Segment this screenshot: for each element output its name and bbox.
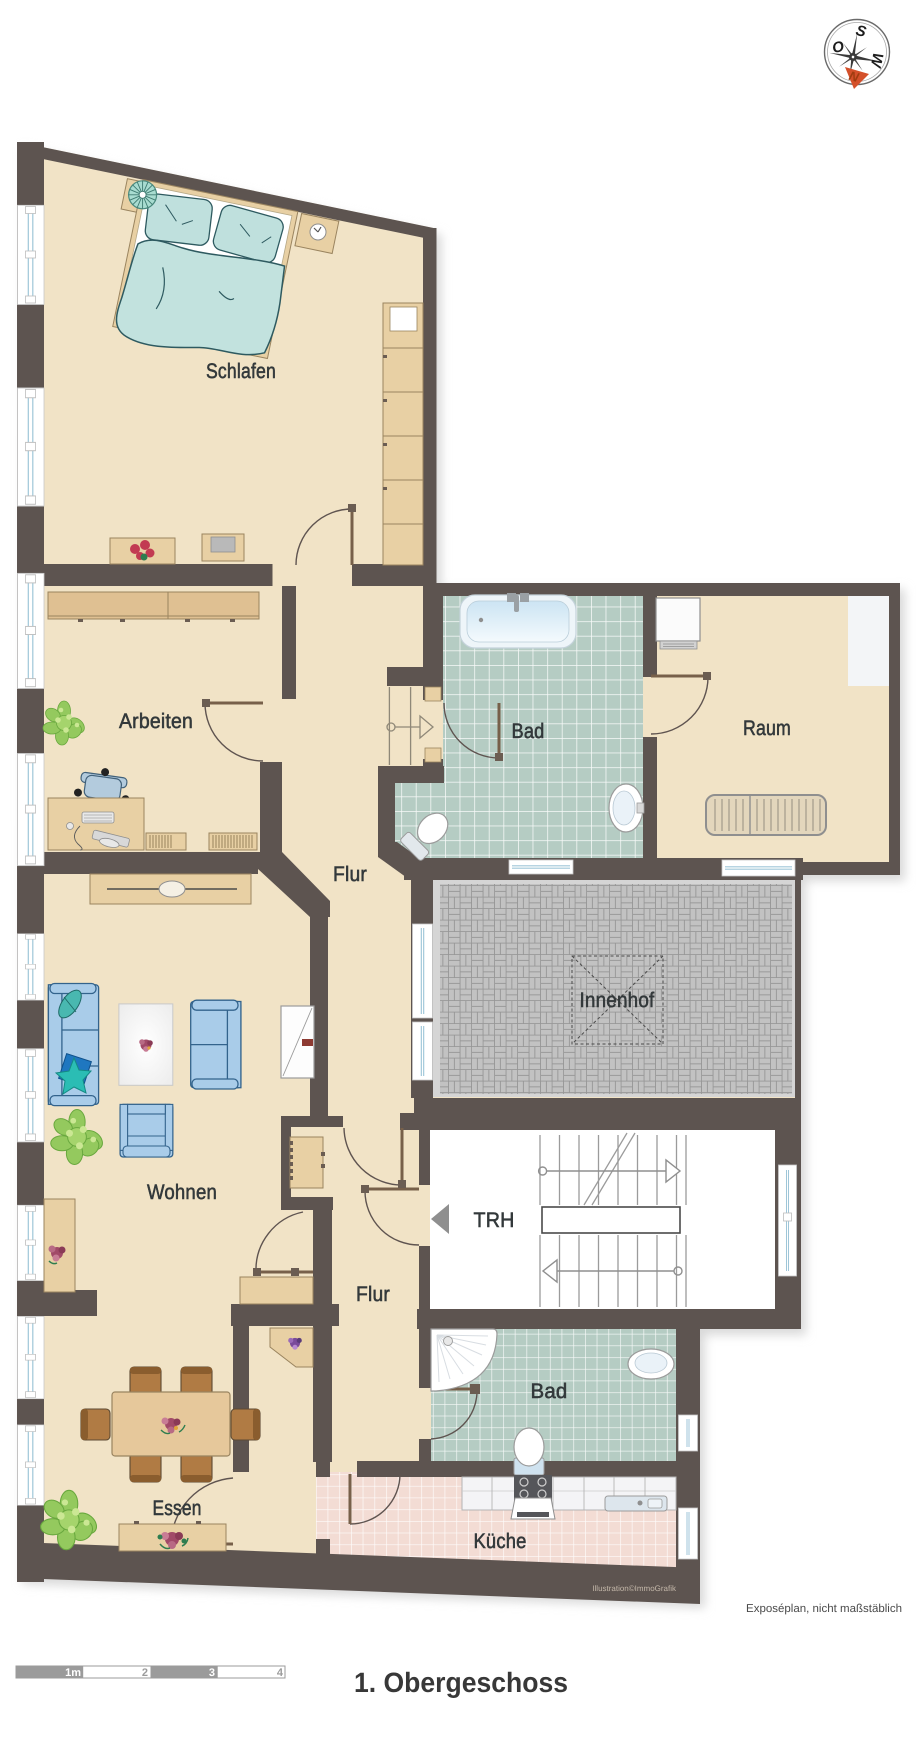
svg-text:2: 2 (142, 1667, 148, 1679)
svg-text:Schlafen: Schlafen (206, 360, 276, 383)
svg-text:Innenhof: Innenhof (580, 989, 655, 1012)
svg-text:1. Obergeschoss: 1. Obergeschoss (354, 1667, 568, 1698)
svg-text:TRH: TRH (474, 1209, 515, 1232)
svg-text:Wohnen: Wohnen (147, 1181, 217, 1204)
svg-text:Küche: Küche (474, 1530, 527, 1553)
svg-text:Flur: Flur (356, 1283, 390, 1306)
svg-text:Flur: Flur (333, 863, 367, 886)
svg-text:1m: 1m (65, 1667, 81, 1679)
svg-text:Raum: Raum (743, 717, 791, 740)
svg-text:3: 3 (209, 1667, 215, 1679)
svg-text:Arbeiten: Arbeiten (119, 710, 193, 733)
svg-text:Illustration©ImmoGrafik: Illustration©ImmoGrafik (592, 1584, 677, 1593)
svg-text:4: 4 (277, 1667, 284, 1679)
svg-text:Bad: Bad (512, 720, 545, 743)
svg-text:Bad: Bad (531, 1380, 568, 1403)
svg-text:Exposéplan, nicht maßstäblich: Exposéplan, nicht maßstäblich (746, 1603, 902, 1615)
svg-text:Essen: Essen (153, 1497, 202, 1520)
